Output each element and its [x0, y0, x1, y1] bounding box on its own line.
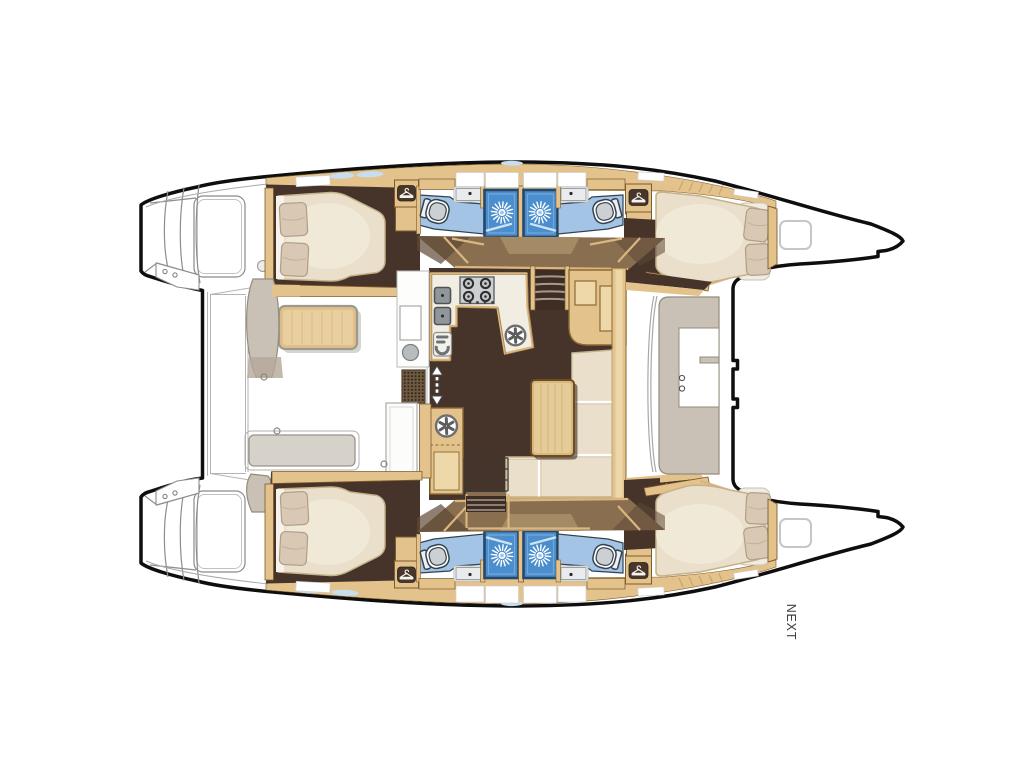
svg-text:NEXT: NEXT	[784, 604, 798, 641]
